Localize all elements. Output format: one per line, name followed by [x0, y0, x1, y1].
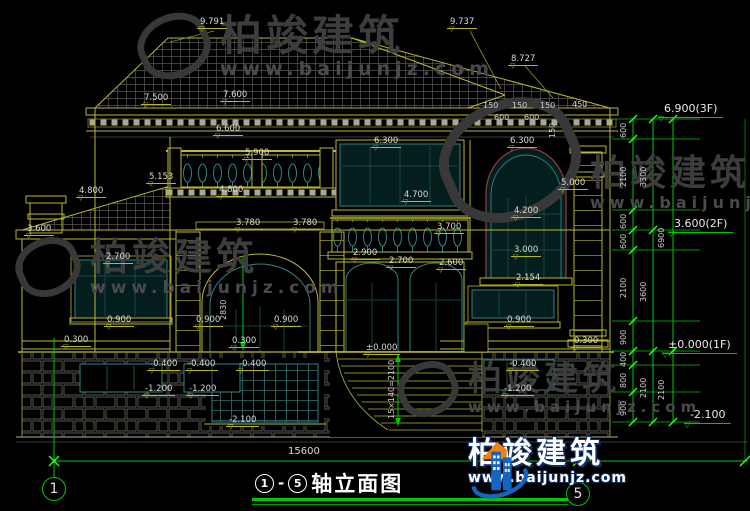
elev-label: 6.300 [371, 137, 401, 148]
sdim-label: 600 [524, 114, 539, 122]
elev-label: 4.800 [216, 186, 246, 197]
lvl-label: -2.100 [684, 409, 731, 424]
sdim-label: 450 [572, 101, 587, 109]
rdim-label: 3600 [640, 282, 648, 302]
elev-label: -2.100 [226, 416, 259, 427]
elev-label: 0.900 [504, 316, 534, 327]
lvl-label: 6.900(3F) [658, 103, 723, 118]
elev-label: 9.791 [197, 18, 227, 29]
elev-label: 4.700 [401, 191, 431, 202]
sdim-label: 150 [512, 102, 527, 110]
rdim-label: 2100 [620, 278, 628, 298]
rdim-label: 15×140=2100 [388, 360, 396, 419]
elev-label: -0.400 [236, 360, 269, 371]
rdim-label: 600 [620, 234, 628, 249]
elev-label: 2.700 [103, 253, 133, 264]
elev-label: 3.780 [290, 219, 320, 230]
rdim-label: 600 [620, 214, 628, 229]
elev-label: 0.900 [271, 316, 301, 327]
elev-label: -0.400 [506, 360, 539, 371]
elev-label: -0.400 [147, 360, 180, 371]
rdim-label: 400 [620, 352, 628, 367]
elev-label: 8.727 [508, 55, 538, 66]
brand-logo: 柏竣建筑 www.baijunjz.com [468, 438, 627, 486]
elev-label: 5.900 [242, 149, 272, 160]
elev-label: 0.300 [229, 337, 259, 348]
elev-label: -0.400 [185, 360, 218, 371]
rdim-label: 800 [620, 373, 628, 388]
elev-label: 0.900 [104, 316, 134, 327]
sdim-label: 150 [540, 102, 555, 110]
rdim-label: 2830 [220, 300, 228, 320]
elev-label: 6.600 [213, 125, 243, 136]
elev-label: 2.700 [386, 257, 416, 268]
cad-canvas: 柏竣建筑 www.baijunjz.com 柏竣建筑 www.baijunjz.… [0, 0, 750, 511]
elev-label: 5.153 [146, 173, 176, 184]
elev-label: 9.737 [447, 18, 477, 29]
elev-label: ±0.000 [363, 344, 400, 355]
elev-label: 3.000 [511, 246, 541, 257]
rdim-label: 2100 [620, 167, 628, 187]
elev-label: 0.300 [571, 337, 601, 348]
sdim-label: 600 [494, 114, 509, 122]
rdim-label: 900 [620, 401, 628, 416]
rdim-label: 600 [620, 123, 628, 138]
elev-label: -1.200 [142, 385, 175, 396]
elev-label: 4.200 [511, 207, 541, 218]
brand-logo-icon [468, 438, 530, 500]
elev-label: 6.300 [507, 137, 537, 148]
elev-label: 0.300 [61, 336, 91, 347]
lvl-label: ±0.000(1F) [662, 339, 737, 354]
elev-label: 3.600 [24, 225, 54, 236]
sdim-label: 150 [483, 102, 498, 110]
elev-label: 2.600 [436, 259, 466, 270]
elev-label: -1.200 [186, 385, 219, 396]
elev-label: 5.000 [558, 179, 588, 190]
rdim-label: 6900 [658, 228, 666, 248]
elev-label: 3.700 [434, 223, 464, 234]
lvl-label: 3.600(2F) [668, 218, 733, 233]
rdim-label: 900 [620, 330, 628, 345]
rdim-label: 150 [549, 123, 557, 138]
rdim-label: 2100 [658, 380, 666, 400]
elev-label: 3.780 [233, 219, 263, 230]
elev-label: 2.900 [350, 249, 380, 260]
elev-label: 4.800 [76, 187, 106, 198]
elev-label: 7.600 [220, 91, 250, 102]
rdim-label: 3300 [640, 167, 648, 187]
annotation-layer: 9.7919.7378.7277.5007.6006.6005.9005.153… [0, 0, 750, 511]
rdim-label: 2100 [640, 378, 648, 398]
elev-label: 2.154 [513, 274, 543, 285]
elev-label: 7.500 [141, 94, 171, 105]
elev-label: -1.200 [501, 385, 534, 396]
